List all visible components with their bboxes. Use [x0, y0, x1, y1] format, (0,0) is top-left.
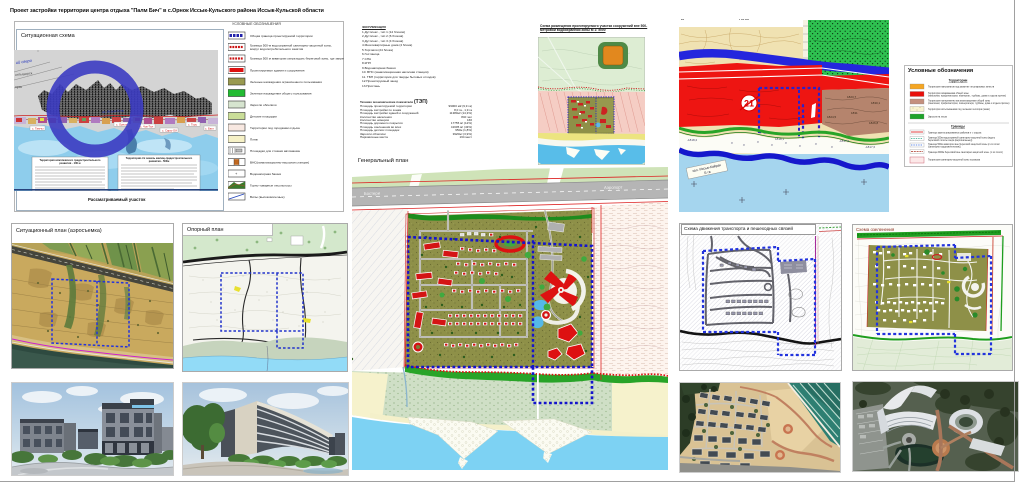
svg-text:Заросли на лесах: Заросли на лесах	[928, 116, 948, 118]
svg-text:Территория испытываемая под ле: Территория испытываемая под лесными лесо…	[928, 109, 990, 111]
svg-text:Бостери: Бостери	[364, 191, 381, 196]
svg-text:ВНС(канализационно-насосная ст: ВНС(канализационно-насосная станция)	[250, 161, 309, 165]
svg-text:x: x	[730, 141, 733, 145]
svg-text:1818,1: 1818,1	[775, 137, 785, 141]
svg-text:Территория осваиваемая общей з: Территория осваиваемая общей зоны	[928, 92, 969, 95]
svg-text:береговой полосы озера (вертик: береговой полосы озера (вертикальные))	[928, 139, 973, 142]
svg-text:Аэропорт: Аэропорт	[604, 185, 623, 190]
svg-text:с. Тамчы: с. Тамчы	[32, 126, 43, 130]
svg-text:Территории: Территории	[949, 79, 968, 83]
svg-text:Граница 500м водоохранной сани: Граница 500м водоохранной санитарно-защи…	[928, 136, 996, 139]
svg-text:x: x	[830, 145, 833, 149]
svg-text:1823,7: 1823,7	[847, 95, 857, 99]
svg-text:Граница 2000м береговой вне са: Граница 2000м береговой вне санитарно-за…	[928, 151, 1003, 154]
svg-text:Территория санитарно-защитной: Территория санитарно-защитной зоны госза…	[928, 159, 981, 162]
svg-text:x: x	[814, 142, 817, 146]
svg-text:Зеленые насаждения ограниченно: Зеленые насаждения ограниченного пользов…	[250, 80, 322, 84]
svg-text:Границы: Границы	[951, 125, 965, 129]
svg-text:Водонапорная башня: Водонапорная башня	[250, 172, 281, 176]
svg-text:Проектируемые здания и сооруже: Проектируемые здания и сооружения	[250, 69, 305, 73]
svg-text:Площадки для стоянки автомашин: Площадки для стоянки автомашин	[250, 149, 300, 153]
svg-text:x: x	[798, 144, 801, 148]
svg-text:x: x	[784, 141, 787, 145]
svg-text:(санаторно-оздоровительная)): (санаторно-оздоровительная))	[928, 147, 961, 149]
svg-text:Заросли облепихи: Заросли облепихи	[250, 103, 277, 107]
svg-text:Зеленые насаждения общего поль: Зеленые насаждения общего пользования	[250, 92, 312, 96]
svg-text:Территории под городками отдых: Территории под городками отдыха	[250, 126, 300, 130]
svg-text:Территория попеременно как ана: Территория попеременно как анализируемая…	[928, 99, 990, 102]
svg-text:1831: 1831	[851, 111, 858, 115]
svg-text:1830,1: 1830,1	[871, 101, 881, 105]
svg-text:с. Бакт: с. Бакт	[205, 126, 215, 130]
svg-text:Вилы (высоковольтные): Вилы (высоковольтные)	[250, 195, 285, 199]
svg-text:-1817,9: -1817,9	[839, 139, 850, 143]
svg-text:1824,5: 1824,5	[827, 115, 837, 119]
svg-text:-1817,6: -1817,6	[865, 145, 876, 149]
svg-text:развития - 100 м: развития - 100 м	[59, 161, 80, 165]
svg-text:x: x	[742, 143, 745, 147]
svg-text:орск: орск	[15, 85, 22, 89]
svg-text:развития - 500м: развития - 500м	[149, 159, 170, 163]
svg-text:вокруг водопотребительного зан: вокруг водопотребительного занятия	[250, 47, 303, 51]
svg-text:1826,8: 1826,8	[869, 121, 879, 125]
svg-text:Общая граница проектируемой те: Общая граница проектируемой территории	[250, 34, 313, 38]
svg-text:Граница 500 м акватории озера: Граница 500 м акватории озера вдоль бере…	[250, 57, 344, 61]
svg-text:-1818,2: -1818,2	[687, 138, 698, 142]
svg-text:с. Орнок: с. Орнок	[116, 122, 128, 126]
svg-text:Граница 500м акватории вне бер: Граница 500м акватории вне береговой защ…	[928, 143, 1001, 146]
svg-text:с. Чок-Тал: с. Чок-Тал	[140, 124, 154, 128]
svg-text:Территория пансионатов под раз: Территория пансионатов под развитие лесо…	[928, 87, 995, 89]
svg-text:Детские площадки: Детские площадки	[250, 115, 277, 119]
svg-text:x: x	[770, 143, 773, 147]
svg-text:(пансионат, профилактории, пио: (пансионат, профилактории, пионерлаг., т…	[928, 95, 1006, 98]
svg-text:Граница зарегистрированных рай: Граница зарегистрированных районов и т. …	[928, 131, 982, 134]
svg-text:с. Тору: с. Тору	[188, 122, 198, 126]
svg-text:Горно-товарные лесополосы: Горно-товарные лесополосы	[250, 184, 292, 188]
svg-text:Пляж: Пляж	[250, 138, 259, 142]
svg-text:(пансионат, профилактории, пио: (пансионат, профилактории, пионерлагеря,…	[928, 102, 1010, 105]
svg-text:с. Сары-Ой: с. Сары-Ой	[162, 128, 177, 132]
svg-text:x: x	[756, 140, 759, 144]
